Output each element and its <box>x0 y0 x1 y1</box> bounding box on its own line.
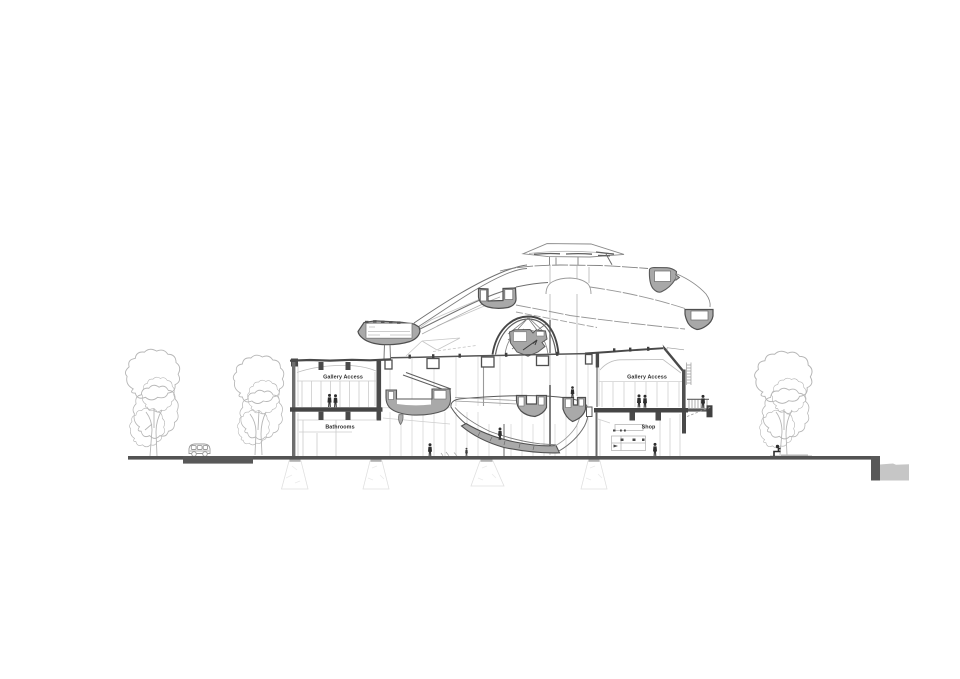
svg-text:Bathrooms: Bathrooms <box>325 425 354 431</box>
svg-text:Shop: Shop <box>642 425 656 431</box>
svg-text:Gallery Access: Gallery Access <box>627 375 667 381</box>
svg-text:Gallery Access: Gallery Access <box>323 375 363 381</box>
